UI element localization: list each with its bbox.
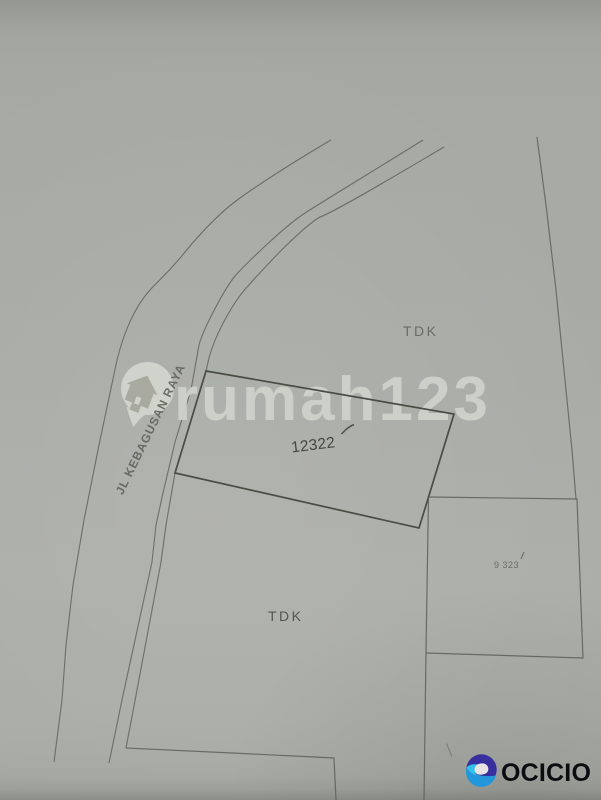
svg-text:12322: 12322 bbox=[290, 434, 336, 456]
svg-text:TDK: TDK bbox=[403, 323, 439, 339]
svg-text:rumah123: rumah123 bbox=[174, 365, 491, 434]
svg-text:OCICIO: OCICIO bbox=[501, 759, 591, 787]
svg-text:TDK: TDK bbox=[268, 608, 304, 624]
svg-text:9 323: 9 323 bbox=[494, 560, 519, 570]
